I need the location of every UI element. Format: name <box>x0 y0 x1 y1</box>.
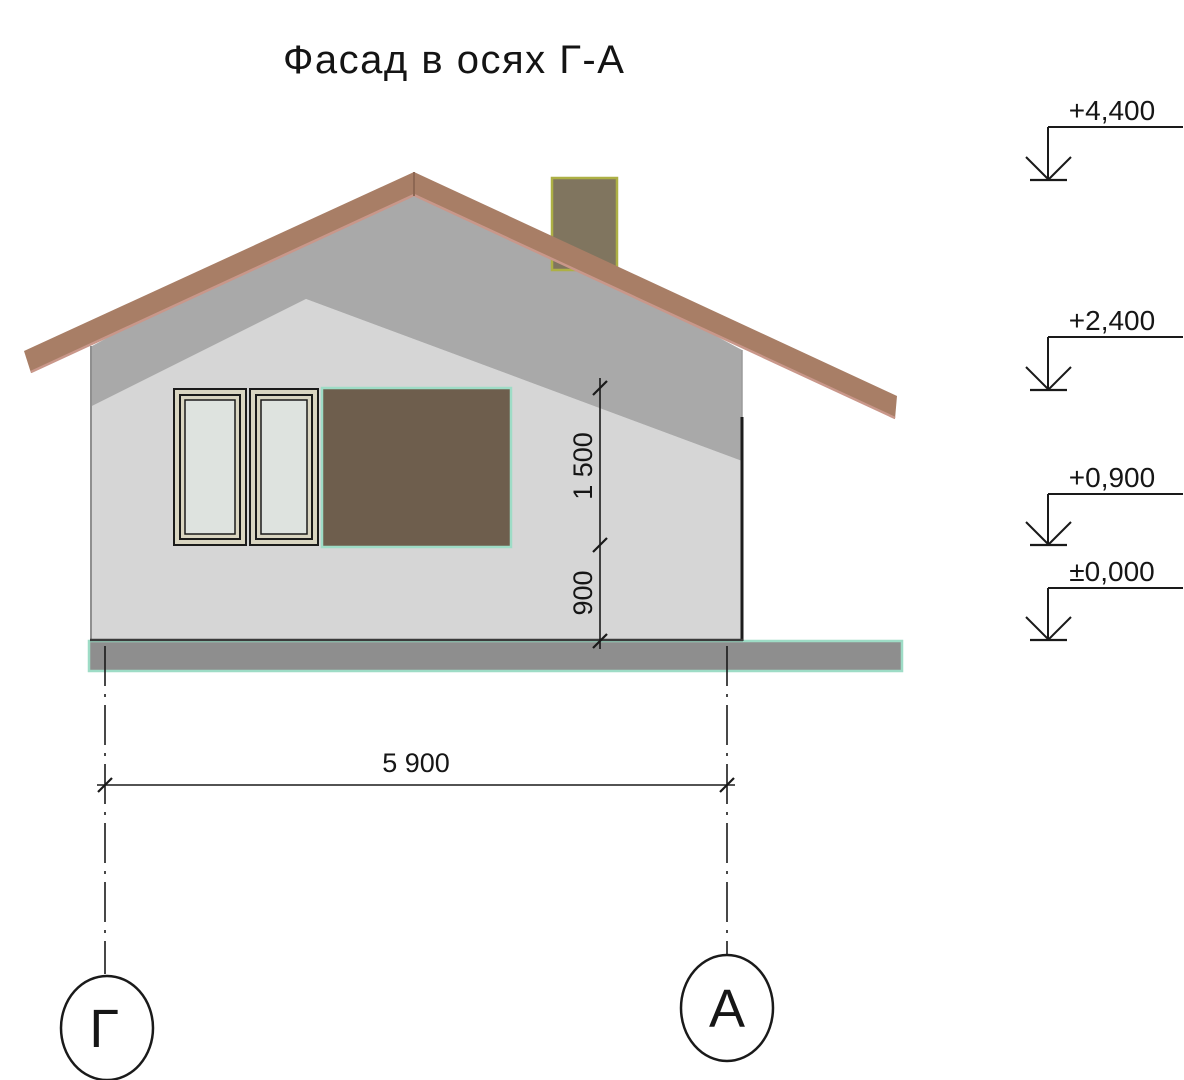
horizontal-dimension: 5 900 <box>97 748 735 792</box>
elevation-mark-ground: ±0,000 <box>1026 556 1183 640</box>
facade-drawing: Фасад в осях Г-А 1 500 90 <box>0 0 1184 1080</box>
mark-arrow-icon <box>1026 617 1049 640</box>
elevation-value: +0,900 <box>1069 462 1155 493</box>
elevation-mark-sill: +0,900 <box>1026 462 1183 545</box>
elevation-value: ±0,000 <box>1069 556 1154 587</box>
axis-bubble-right: А <box>681 955 773 1061</box>
mark-arrow-icon <box>1026 522 1049 545</box>
mark-arrow-icon <box>1048 157 1071 180</box>
mark-arrow-icon <box>1048 617 1071 640</box>
wall-opening <box>322 388 511 547</box>
axis-bubble-left: Г <box>61 976 153 1080</box>
axis-lines <box>105 646 727 974</box>
elevation-mark-ridge: +4,400 <box>1026 95 1183 180</box>
ground-strip <box>89 641 902 671</box>
elevation-mark-eaves: +2,400 <box>1026 305 1183 390</box>
window <box>174 389 318 545</box>
mark-arrow-icon <box>1048 367 1071 390</box>
dimension-label-sill-height: 900 <box>568 570 598 615</box>
axis-label: А <box>709 979 745 1039</box>
drawing-title: Фасад в осях Г-А <box>283 38 625 82</box>
drawing-sheet: Фасад в осях Г-А 1 500 90 <box>0 0 1184 1080</box>
dimension-label-building-width: 5 900 <box>382 748 450 778</box>
window-glass-right <box>261 400 307 534</box>
dimension-label-window-height: 1 500 <box>568 432 598 500</box>
window-glass-left <box>185 400 235 534</box>
mark-arrow-icon <box>1026 157 1049 180</box>
elevation-value: +4,400 <box>1069 95 1155 126</box>
mark-arrow-icon <box>1048 522 1071 545</box>
elevation-value: +2,400 <box>1069 305 1155 336</box>
mark-arrow-icon <box>1026 367 1049 390</box>
axis-label: Г <box>89 999 118 1059</box>
